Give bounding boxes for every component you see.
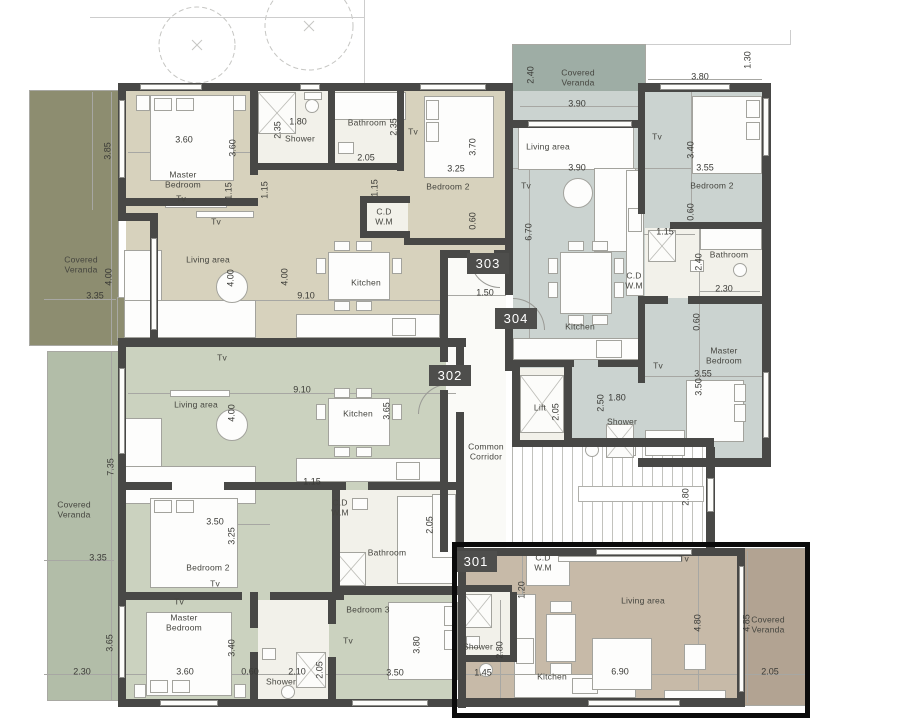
dimension-label: 3.65 <box>106 634 115 652</box>
room-label: Bedroom 3 <box>346 605 389 615</box>
wall-segment <box>118 338 466 347</box>
dimension-label: 3.55 <box>694 370 712 379</box>
dimension-label: 2.05 <box>316 661 325 679</box>
dimension-label: 4.00 <box>227 269 236 287</box>
room-label: Shower <box>266 677 296 687</box>
window <box>300 84 320 90</box>
furniture <box>746 122 760 140</box>
wall-segment <box>688 296 770 304</box>
furniture <box>356 388 372 398</box>
furniture <box>568 241 584 251</box>
dimension-label: 2.80 <box>682 488 691 506</box>
furniture <box>234 684 246 698</box>
window <box>352 700 428 706</box>
wall-segment <box>360 196 410 203</box>
furniture <box>334 388 350 398</box>
room-label: Bathroom <box>710 250 748 260</box>
wall-segment <box>572 438 714 447</box>
window <box>119 606 125 678</box>
furniture <box>426 122 439 142</box>
wall-segment <box>368 482 464 490</box>
furniture <box>172 680 190 693</box>
room-label: Master Bedroom <box>165 171 201 190</box>
dimension-label: 3.50 <box>695 378 704 396</box>
dimension-label: 0.60 <box>693 313 702 331</box>
room-label: Tv <box>176 194 186 204</box>
dimension-label: 3.25 <box>228 527 237 545</box>
unit-badge-303: 303 <box>467 253 509 274</box>
room-label: Common Corridor <box>468 443 504 462</box>
wall-segment <box>250 652 258 707</box>
dimension-label: 4.00 <box>281 268 290 286</box>
room-label: Bedroom 2 <box>426 182 469 192</box>
dimension-label: 0.60 <box>241 668 259 677</box>
dimension-label: 3.40 <box>228 639 237 657</box>
furniture <box>334 92 406 120</box>
dimension-label: 2.05 <box>426 516 435 534</box>
wall-segment <box>598 360 645 367</box>
room-label: Tv <box>211 217 221 227</box>
wall-segment <box>670 222 770 229</box>
window <box>119 368 125 454</box>
property-line <box>790 30 791 45</box>
dimension-label: 3.50 <box>206 518 224 527</box>
dimension-label: 3.60 <box>175 136 193 145</box>
dimension-label: 3.90 <box>568 100 586 109</box>
furniture <box>560 252 612 314</box>
furniture <box>426 100 439 120</box>
furniture <box>356 241 372 251</box>
room-label: Bathroom <box>368 548 406 558</box>
dimension-label: 6.70 <box>525 223 534 241</box>
dimension-line <box>92 92 93 210</box>
dimension-line <box>44 299 116 300</box>
furniture <box>334 447 350 457</box>
room-label: C.D W.M <box>331 499 349 518</box>
wall-segment <box>332 586 464 595</box>
furniture <box>548 258 558 274</box>
furniture <box>328 252 390 300</box>
dimension-label: 3.80 <box>691 73 709 82</box>
wall-segment <box>250 592 258 628</box>
wall-segment <box>404 238 510 245</box>
room-label: Covered Veranda <box>561 69 595 88</box>
dimension-label: 2.05 <box>552 403 561 421</box>
room-label: Bedroom 2 <box>186 563 229 573</box>
property-line <box>90 17 364 18</box>
wall-segment <box>328 592 336 624</box>
dimension-label: 4.00 <box>228 404 237 422</box>
dimension-label: 4.00 <box>105 268 114 286</box>
furniture <box>232 95 246 111</box>
room-label: Kitchen <box>351 278 381 288</box>
room-label: C.D W.M <box>625 272 643 291</box>
room-label: Shower <box>607 417 637 427</box>
dimension-label: 1.15 <box>303 478 321 487</box>
furniture <box>734 404 746 422</box>
furniture <box>124 300 256 338</box>
furniture <box>356 301 372 311</box>
window <box>420 84 486 90</box>
wall-segment <box>512 440 572 447</box>
dimension-label: 3.60 <box>176 668 194 677</box>
furniture <box>338 142 354 154</box>
wall-segment <box>440 250 448 362</box>
furniture <box>392 318 416 336</box>
dimension-label: 2.30 <box>715 285 733 294</box>
window <box>151 238 157 330</box>
furniture <box>596 340 622 358</box>
furniture <box>592 241 608 251</box>
room-label: Tv <box>217 353 227 363</box>
window <box>763 372 769 438</box>
room-label: Covered Veranda <box>57 501 91 520</box>
room-label: Kitchen <box>565 322 595 332</box>
shower-tray <box>336 552 366 586</box>
window <box>707 478 714 512</box>
furniture <box>352 498 368 510</box>
dimension-label: 7.35 <box>107 458 116 476</box>
dimension-label: 1.15 <box>371 179 380 197</box>
wall-segment <box>258 163 404 170</box>
dimension-label: 3.85 <box>104 142 113 160</box>
furniture <box>150 680 168 693</box>
furniture <box>296 314 440 338</box>
dimension-label: 3.60 <box>229 139 238 157</box>
furniture <box>734 384 746 402</box>
wall-segment <box>224 482 346 490</box>
dimension-label: 2.40 <box>695 253 704 271</box>
window <box>160 700 218 706</box>
dimension-label: 3.40 <box>687 141 696 159</box>
room-label: Tv <box>210 579 220 589</box>
room-label: Living area <box>186 255 230 265</box>
room-label: Tv <box>343 636 353 646</box>
dimension-label: 3.25 <box>447 165 465 174</box>
furniture <box>154 500 172 513</box>
furniture <box>316 258 326 274</box>
room-label: Living area <box>526 142 570 152</box>
furniture <box>176 98 194 111</box>
dimension-label: 2.40 <box>527 66 536 84</box>
room-label: Tv <box>174 597 184 607</box>
dimension-label: 2.05 <box>357 154 375 163</box>
dimension-label: 3.55 <box>696 164 714 173</box>
room-label: Tv <box>652 132 662 142</box>
dimension-label: 1.80 <box>608 394 626 403</box>
furniture <box>176 500 194 513</box>
dimension-label: 3.35 <box>89 554 107 563</box>
room-label: Tv <box>653 361 663 371</box>
wall-segment <box>512 360 574 367</box>
room-label: Master Bedroom <box>706 347 742 366</box>
room-label: Lift <box>534 403 546 413</box>
wall-segment <box>328 657 336 707</box>
wall-segment <box>118 198 258 206</box>
veranda-area <box>30 91 118 345</box>
room-label: Tv <box>408 127 418 137</box>
room-label: Master Bedroom <box>166 614 202 633</box>
property-line <box>364 0 365 84</box>
wall-segment <box>638 296 645 383</box>
room-label: Living area <box>174 400 218 410</box>
window <box>528 121 632 127</box>
window <box>660 84 730 90</box>
dimension-label: 2.35 <box>390 118 399 136</box>
unit-badge-304: 304 <box>495 308 537 329</box>
window <box>763 98 769 156</box>
dimension-label: 0.60 <box>687 203 696 221</box>
dimension-label: 3.80 <box>413 636 422 654</box>
dimension-label: 3.35 <box>86 292 104 301</box>
dimension-label: 9.10 <box>297 292 315 301</box>
window <box>140 84 202 90</box>
furniture <box>154 98 172 111</box>
room-label: Bathroom <box>348 118 386 128</box>
dimension-line <box>111 92 112 345</box>
tree-icon <box>265 0 353 70</box>
furniture <box>196 211 254 218</box>
furniture <box>316 404 326 420</box>
table-round <box>563 178 593 208</box>
furniture <box>392 258 402 274</box>
dimension-label: 3.50 <box>386 669 404 678</box>
furniture <box>262 648 276 660</box>
dimension-label: 2.10 <box>288 668 306 677</box>
furniture <box>396 462 420 480</box>
furniture <box>356 447 372 457</box>
wall-segment <box>250 83 258 175</box>
room-label: Tv <box>521 181 531 191</box>
toilet <box>281 685 295 699</box>
floor-plan: Covered VerandaMaster BedroomTvShowerBat… <box>0 0 900 724</box>
dimension-label: 1.15 <box>261 181 270 199</box>
dimension-label: 2.35 <box>274 121 283 139</box>
wall-segment <box>328 83 335 169</box>
dimension-label: 1.30 <box>744 51 753 69</box>
wall-segment <box>360 231 410 238</box>
dimension-label: 3.90 <box>568 164 586 173</box>
room-label: Covered Veranda <box>64 256 98 275</box>
wall-segment <box>512 367 520 447</box>
furniture <box>170 390 230 397</box>
dimension-label: 1.15 <box>225 182 234 200</box>
dimension-label: 1.15 <box>656 228 674 237</box>
furniture <box>334 241 350 251</box>
dimension-label: 3.65 <box>383 402 392 420</box>
unit-badge-302: 302 <box>429 365 471 386</box>
furniture <box>548 282 558 298</box>
wall-segment <box>564 367 572 447</box>
toilet <box>733 263 747 277</box>
furniture <box>700 226 762 250</box>
toilet <box>305 99 319 113</box>
wall-segment <box>638 458 771 467</box>
furniture <box>746 100 760 118</box>
room-label: Kitchen <box>343 409 373 419</box>
furniture <box>134 684 146 698</box>
dimension-label: 1.50 <box>476 289 494 298</box>
unit-301-highlight <box>452 542 810 718</box>
furniture <box>136 95 150 111</box>
wall-segment <box>456 412 464 558</box>
wall-segment <box>440 390 448 552</box>
dimension-label: 0.60 <box>469 212 478 230</box>
dimension-label: 3.70 <box>469 138 478 156</box>
room-label: Bedroom 2 <box>690 181 733 191</box>
wall-segment <box>118 482 172 490</box>
wall-segment <box>638 92 645 214</box>
window <box>119 100 125 178</box>
tree-icon <box>159 7 235 83</box>
dimension-label: 2.30 <box>73 668 91 677</box>
furniture <box>334 301 350 311</box>
room-label: Shower <box>285 134 315 144</box>
furniture <box>392 404 402 420</box>
room-label: C.D W.M <box>375 208 393 227</box>
furniture <box>614 282 624 298</box>
dimension-label: 1.80 <box>289 118 307 127</box>
dimension-label: 9.10 <box>293 386 311 395</box>
dimension-label: 2.50 <box>597 394 606 412</box>
furniture <box>614 258 624 274</box>
